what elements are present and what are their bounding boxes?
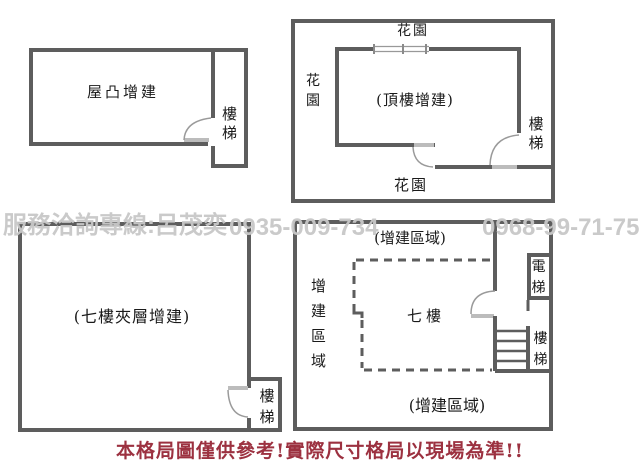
seventh-stairs-label: 樓梯 — [533, 329, 548, 371]
top-floor-garden-top-label: 花園 — [383, 23, 443, 39]
top-floor-plan — [293, 21, 553, 201]
top-floor-garden-left-label: 花園 — [305, 71, 321, 111]
top-floor-room-label: (頂樓增建) — [355, 92, 475, 109]
rooftop-room-label: 屋凸增建 — [63, 84, 183, 101]
elevator-label: 電梯 — [531, 257, 546, 299]
seventh-area-bottom-label: (增建區域) — [397, 397, 497, 415]
window-mullions — [374, 44, 426, 54]
mezzanine-plan — [20, 224, 280, 430]
rooftop-door-arc — [184, 118, 211, 140]
watermark-phone-2: 0968-99-71-75 — [482, 213, 639, 242]
seventh-room-label: 七樓 — [396, 308, 456, 325]
top-floor-stairs-label: 樓梯 — [528, 115, 544, 153]
window — [373, 47, 429, 52]
top-floor-door-arc-left — [413, 147, 433, 167]
seventh-door-arc — [471, 291, 495, 314]
top-floor-door-arc-right — [490, 135, 519, 165]
rooftop-plan — [31, 50, 246, 166]
watermark-phone-1: 0935-009-734 — [229, 213, 378, 242]
top-floor-garden-bottom-label: 花園 — [381, 177, 441, 194]
stairs-treads — [497, 331, 527, 361]
rooftop-stairs-label: 樓梯 — [221, 105, 238, 143]
seventh-area-left-label: 增建區域 — [310, 274, 327, 374]
mezzanine-stairs-label: 樓梯 — [259, 386, 275, 428]
mezzanine-walls — [20, 224, 280, 430]
watermark-hotline-text: 服務洽詢專線:呂茂奕 — [3, 211, 227, 240]
floor-plan-sheet: 屋凸增建 樓梯 花園 花園 (頂樓增建) 樓梯 花園 (七樓夾層增建) 樓梯 (… — [0, 0, 640, 461]
mezzanine-room-label: (七樓夾層增建) — [62, 308, 202, 326]
disclaimer-text: 本格局圖僅供參考!實際尺寸格局以現場為準!! — [0, 436, 640, 461]
annex-outline-jog — [354, 306, 362, 318]
mezzanine-door-arc — [228, 390, 248, 417]
